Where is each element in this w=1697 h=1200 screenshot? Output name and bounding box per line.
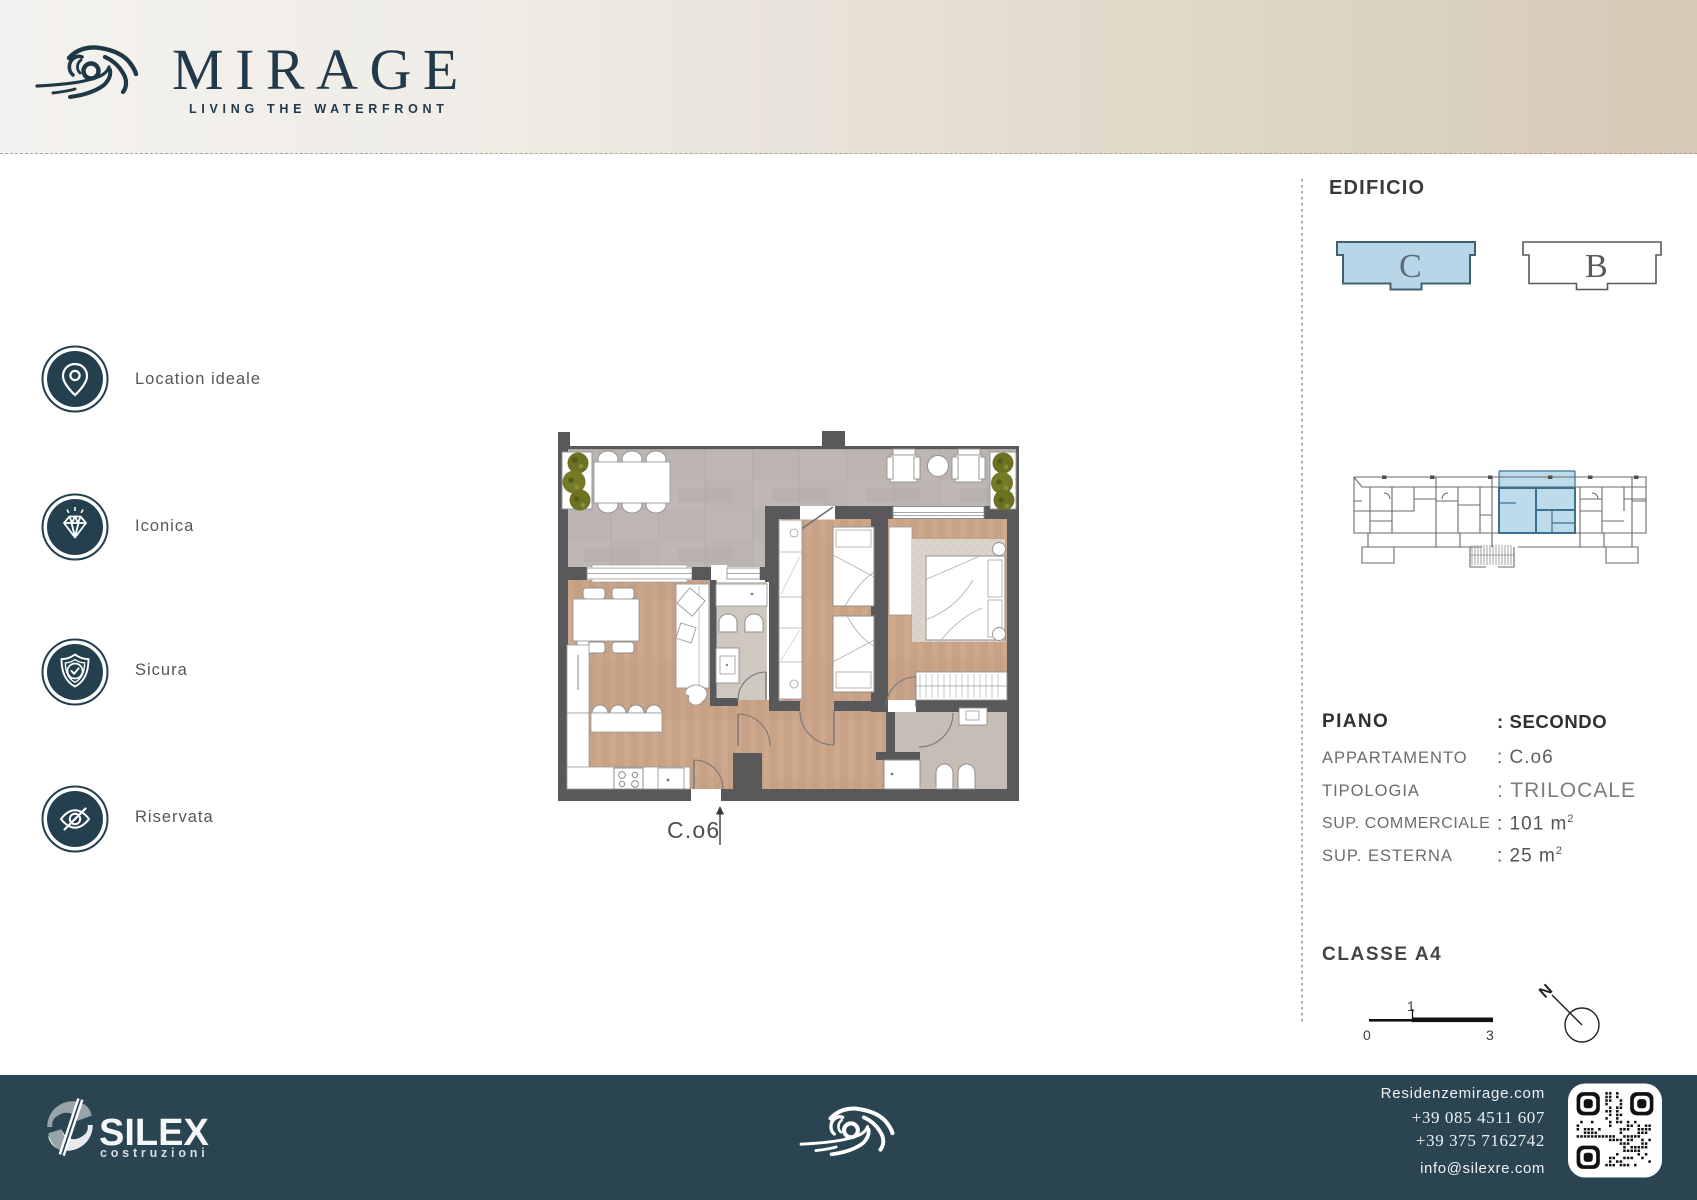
svg-text:N: N (1536, 981, 1556, 1001)
svg-text:1: 1 (1407, 998, 1415, 1014)
svg-text:B: B (1585, 248, 1608, 285)
svg-text:C.o6: C.o6 (667, 817, 720, 843)
svg-text:C: C (1399, 248, 1422, 285)
svg-text:3: 3 (1486, 1027, 1494, 1043)
svg-text:0: 0 (1363, 1027, 1371, 1043)
